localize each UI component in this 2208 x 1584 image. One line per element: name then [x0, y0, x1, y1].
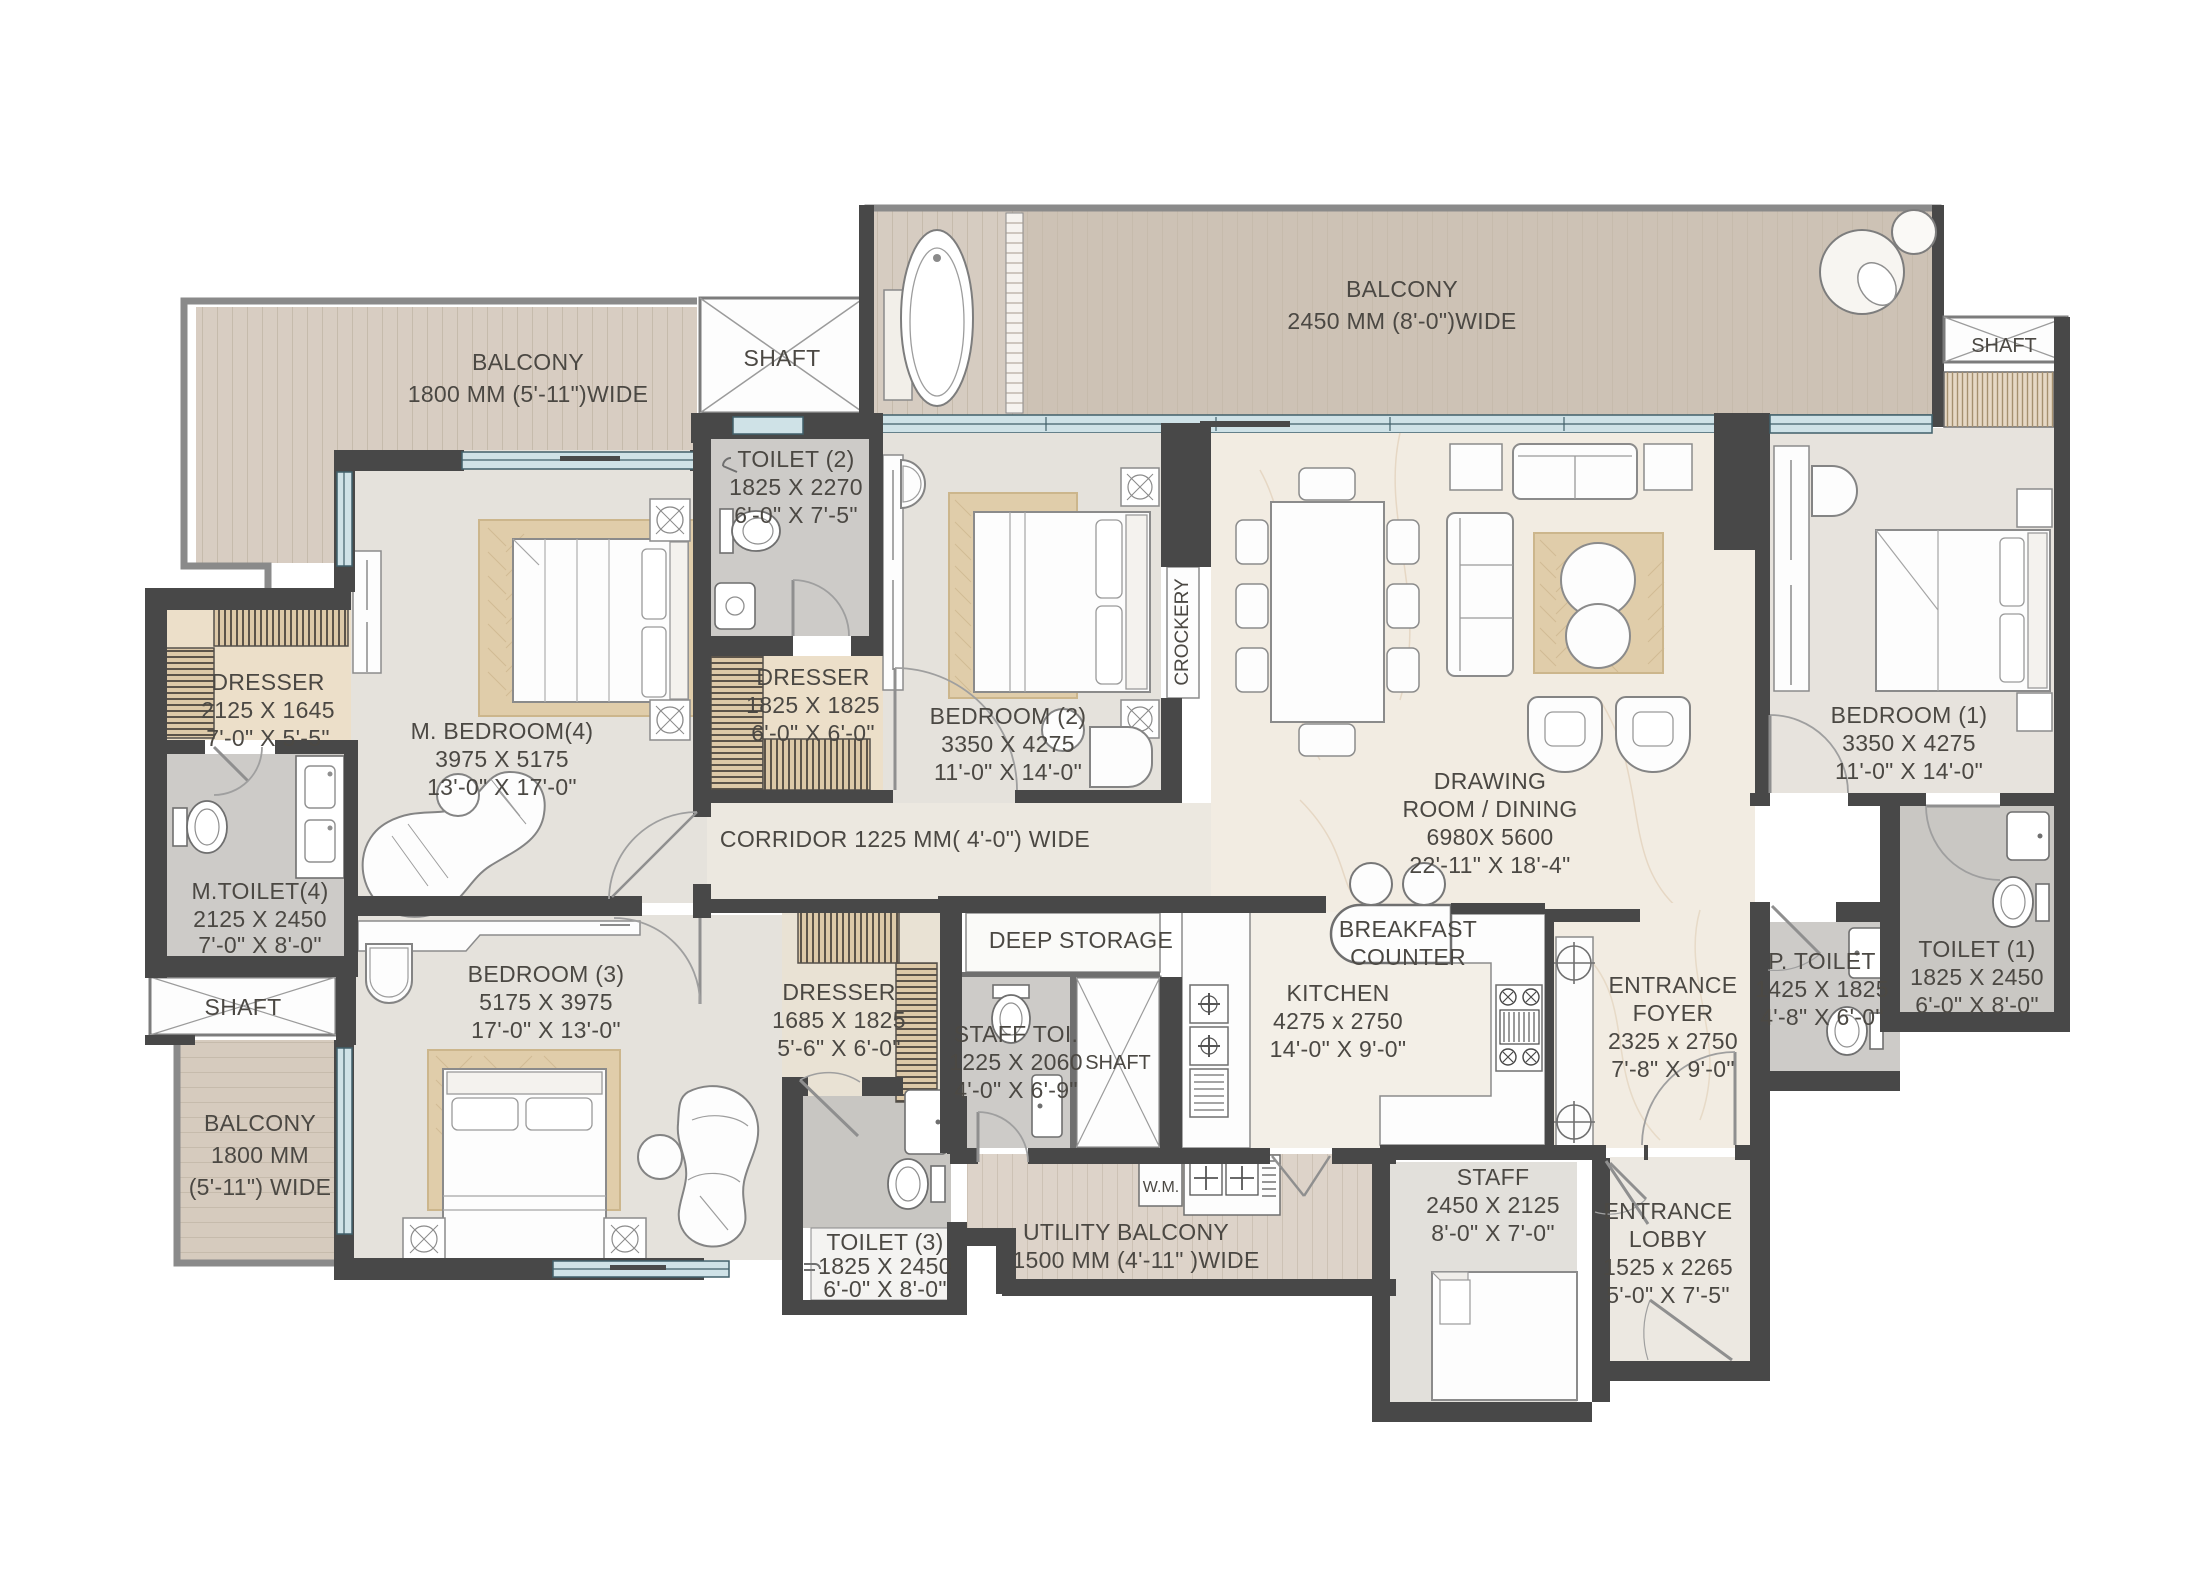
svg-text:BREAKFAST: BREAKFAST: [1339, 916, 1477, 942]
svg-text:STAFF: STAFF: [1457, 1164, 1530, 1190]
svg-text:13'-0" X 17'-0": 13'-0" X 17'-0": [427, 774, 577, 800]
svg-text:4275 x 2750: 4275 x 2750: [1273, 1008, 1403, 1034]
svg-text:BALCONY: BALCONY: [472, 349, 584, 375]
svg-text:BEDROOM (1): BEDROOM (1): [1831, 702, 1988, 728]
svg-text:1525 x 2265: 1525 x 2265: [1603, 1254, 1733, 1280]
svg-text:5'-6" X 6'-0": 5'-6" X 6'-0": [777, 1035, 901, 1061]
svg-text:1425 X 1825: 1425 X 1825: [1755, 976, 1889, 1002]
svg-text:SHAFT: SHAFT: [1085, 1052, 1151, 1074]
svg-text:SHAFT: SHAFT: [744, 345, 821, 371]
svg-text:22'-11" X 18'-4": 22'-11" X 18'-4": [1409, 852, 1570, 878]
svg-text:TOILET (1): TOILET (1): [1918, 936, 2035, 962]
svg-text:6980X 5600: 6980X 5600: [1426, 824, 1553, 850]
svg-text:W.M.: W.M.: [1143, 1179, 1179, 1196]
svg-text:7'-0" X 8'-0": 7'-0" X 8'-0": [198, 932, 322, 958]
svg-text:DRESSER: DRESSER: [782, 979, 895, 1005]
svg-text:2125 X 2450: 2125 X 2450: [193, 906, 327, 932]
svg-text:LOBBY: LOBBY: [1629, 1226, 1707, 1252]
svg-text:7'-8" X 9'-0": 7'-8" X 9'-0": [1611, 1056, 1735, 1082]
svg-text:2450 X 2125: 2450 X 2125: [1426, 1192, 1560, 1218]
svg-text:1825 X 2270: 1825 X 2270: [729, 474, 863, 500]
svg-text:2125 X 1645: 2125 X 1645: [201, 697, 335, 723]
svg-text:CORRIDOR 1225 MM( 4'-0") WIDE: CORRIDOR 1225 MM( 4'-0") WIDE: [720, 826, 1090, 852]
svg-text:CROCKERY: CROCKERY: [1172, 578, 1193, 686]
svg-text:BEDROOM (2): BEDROOM (2): [930, 703, 1087, 729]
svg-text:BALCONY: BALCONY: [204, 1110, 316, 1136]
svg-text:SHAFT: SHAFT: [205, 994, 282, 1020]
svg-text:ENTRANCE: ENTRANCE: [1609, 972, 1738, 998]
svg-text:7'-0" X 5'-5": 7'-0" X 5'-5": [206, 725, 330, 751]
svg-text:5'-0" X 7'-5": 5'-0" X 7'-5": [1606, 1282, 1730, 1308]
svg-text:1225 X 2060: 1225 X 2060: [949, 1049, 1083, 1075]
svg-text:11'-0" X 14'-0": 11'-0" X 14'-0": [934, 759, 1082, 785]
svg-text:11'-0" X 14'-0": 11'-0" X 14'-0": [1835, 758, 1983, 784]
svg-text:4'-0" X 6'-9": 4'-0" X 6'-9": [954, 1077, 1078, 1103]
svg-text:COUNTER: COUNTER: [1350, 944, 1466, 970]
svg-text:ENTRANCE: ENTRANCE: [1604, 1198, 1733, 1224]
svg-text:UTILITY BALCONY: UTILITY BALCONY: [1023, 1219, 1229, 1245]
svg-text:6'-0" X 8'-0": 6'-0" X 8'-0": [823, 1276, 947, 1302]
svg-text:M.TOILET(4): M.TOILET(4): [191, 878, 328, 904]
svg-text:(5'-11") WIDE: (5'-11") WIDE: [189, 1174, 332, 1200]
svg-text:4'-8" X 6'-0": 4'-8" X 6'-0": [1760, 1004, 1884, 1030]
svg-text:2325 x 2750: 2325 x 2750: [1608, 1028, 1738, 1054]
svg-text:M. BEDROOM(4): M. BEDROOM(4): [411, 718, 594, 744]
svg-text:DRAWING: DRAWING: [1434, 768, 1546, 794]
svg-text:8'-0" X 7'-0": 8'-0" X 7'-0": [1431, 1220, 1555, 1246]
svg-text:ROOM / DINING: ROOM / DINING: [1402, 796, 1577, 822]
svg-text:1500 MM (4'-11" )WIDE: 1500 MM (4'-11" )WIDE: [1012, 1247, 1259, 1273]
svg-text:1825 X 2450: 1825 X 2450: [1910, 964, 2044, 990]
svg-text:TOILET (3): TOILET (3): [826, 1229, 943, 1255]
svg-text:STAFF TOI.: STAFF TOI.: [954, 1021, 1078, 1047]
svg-text:1685 X 1825: 1685 X 1825: [772, 1007, 906, 1033]
svg-text:2450 MM (8'-0")WIDE: 2450 MM (8'-0")WIDE: [1287, 308, 1516, 334]
svg-text:DRESSER: DRESSER: [211, 669, 324, 695]
svg-text:1825 X 1825: 1825 X 1825: [746, 692, 880, 718]
svg-text:BEDROOM (3): BEDROOM (3): [468, 961, 625, 987]
svg-text:3350 X 4275: 3350 X 4275: [1842, 730, 1976, 756]
svg-text:3975 X 5175: 3975 X 5175: [435, 746, 569, 772]
svg-text:P. TOILET: P. TOILET: [1768, 948, 1876, 974]
svg-text:FOYER: FOYER: [1633, 1000, 1714, 1026]
svg-text:5175 X 3975: 5175 X 3975: [479, 989, 613, 1015]
svg-text:6'-0" X 8'-0": 6'-0" X 8'-0": [1915, 992, 2039, 1018]
svg-text:SHAFT: SHAFT: [1971, 335, 2037, 357]
svg-text:1800 MM (5'-11")WIDE: 1800 MM (5'-11")WIDE: [408, 381, 649, 407]
svg-text:BALCONY: BALCONY: [1346, 276, 1458, 302]
svg-text:KITCHEN: KITCHEN: [1286, 980, 1389, 1006]
svg-text:DRESSER: DRESSER: [756, 664, 869, 690]
svg-text:1800 MM: 1800 MM: [211, 1142, 309, 1168]
svg-text:6'-0" X 6'-0": 6'-0" X 6'-0": [751, 720, 875, 746]
svg-text:TOILET (2): TOILET (2): [737, 446, 854, 472]
svg-text:3350 X 4275: 3350 X 4275: [941, 731, 1075, 757]
svg-text:14'-0" X 9'-0": 14'-0" X 9'-0": [1270, 1036, 1407, 1062]
svg-text:6'-0" X 7'-5": 6'-0" X 7'-5": [734, 502, 858, 528]
svg-text:DEEP STORAGE: DEEP STORAGE: [989, 927, 1173, 953]
svg-text:17'-0" X 13'-0": 17'-0" X 13'-0": [471, 1017, 621, 1043]
